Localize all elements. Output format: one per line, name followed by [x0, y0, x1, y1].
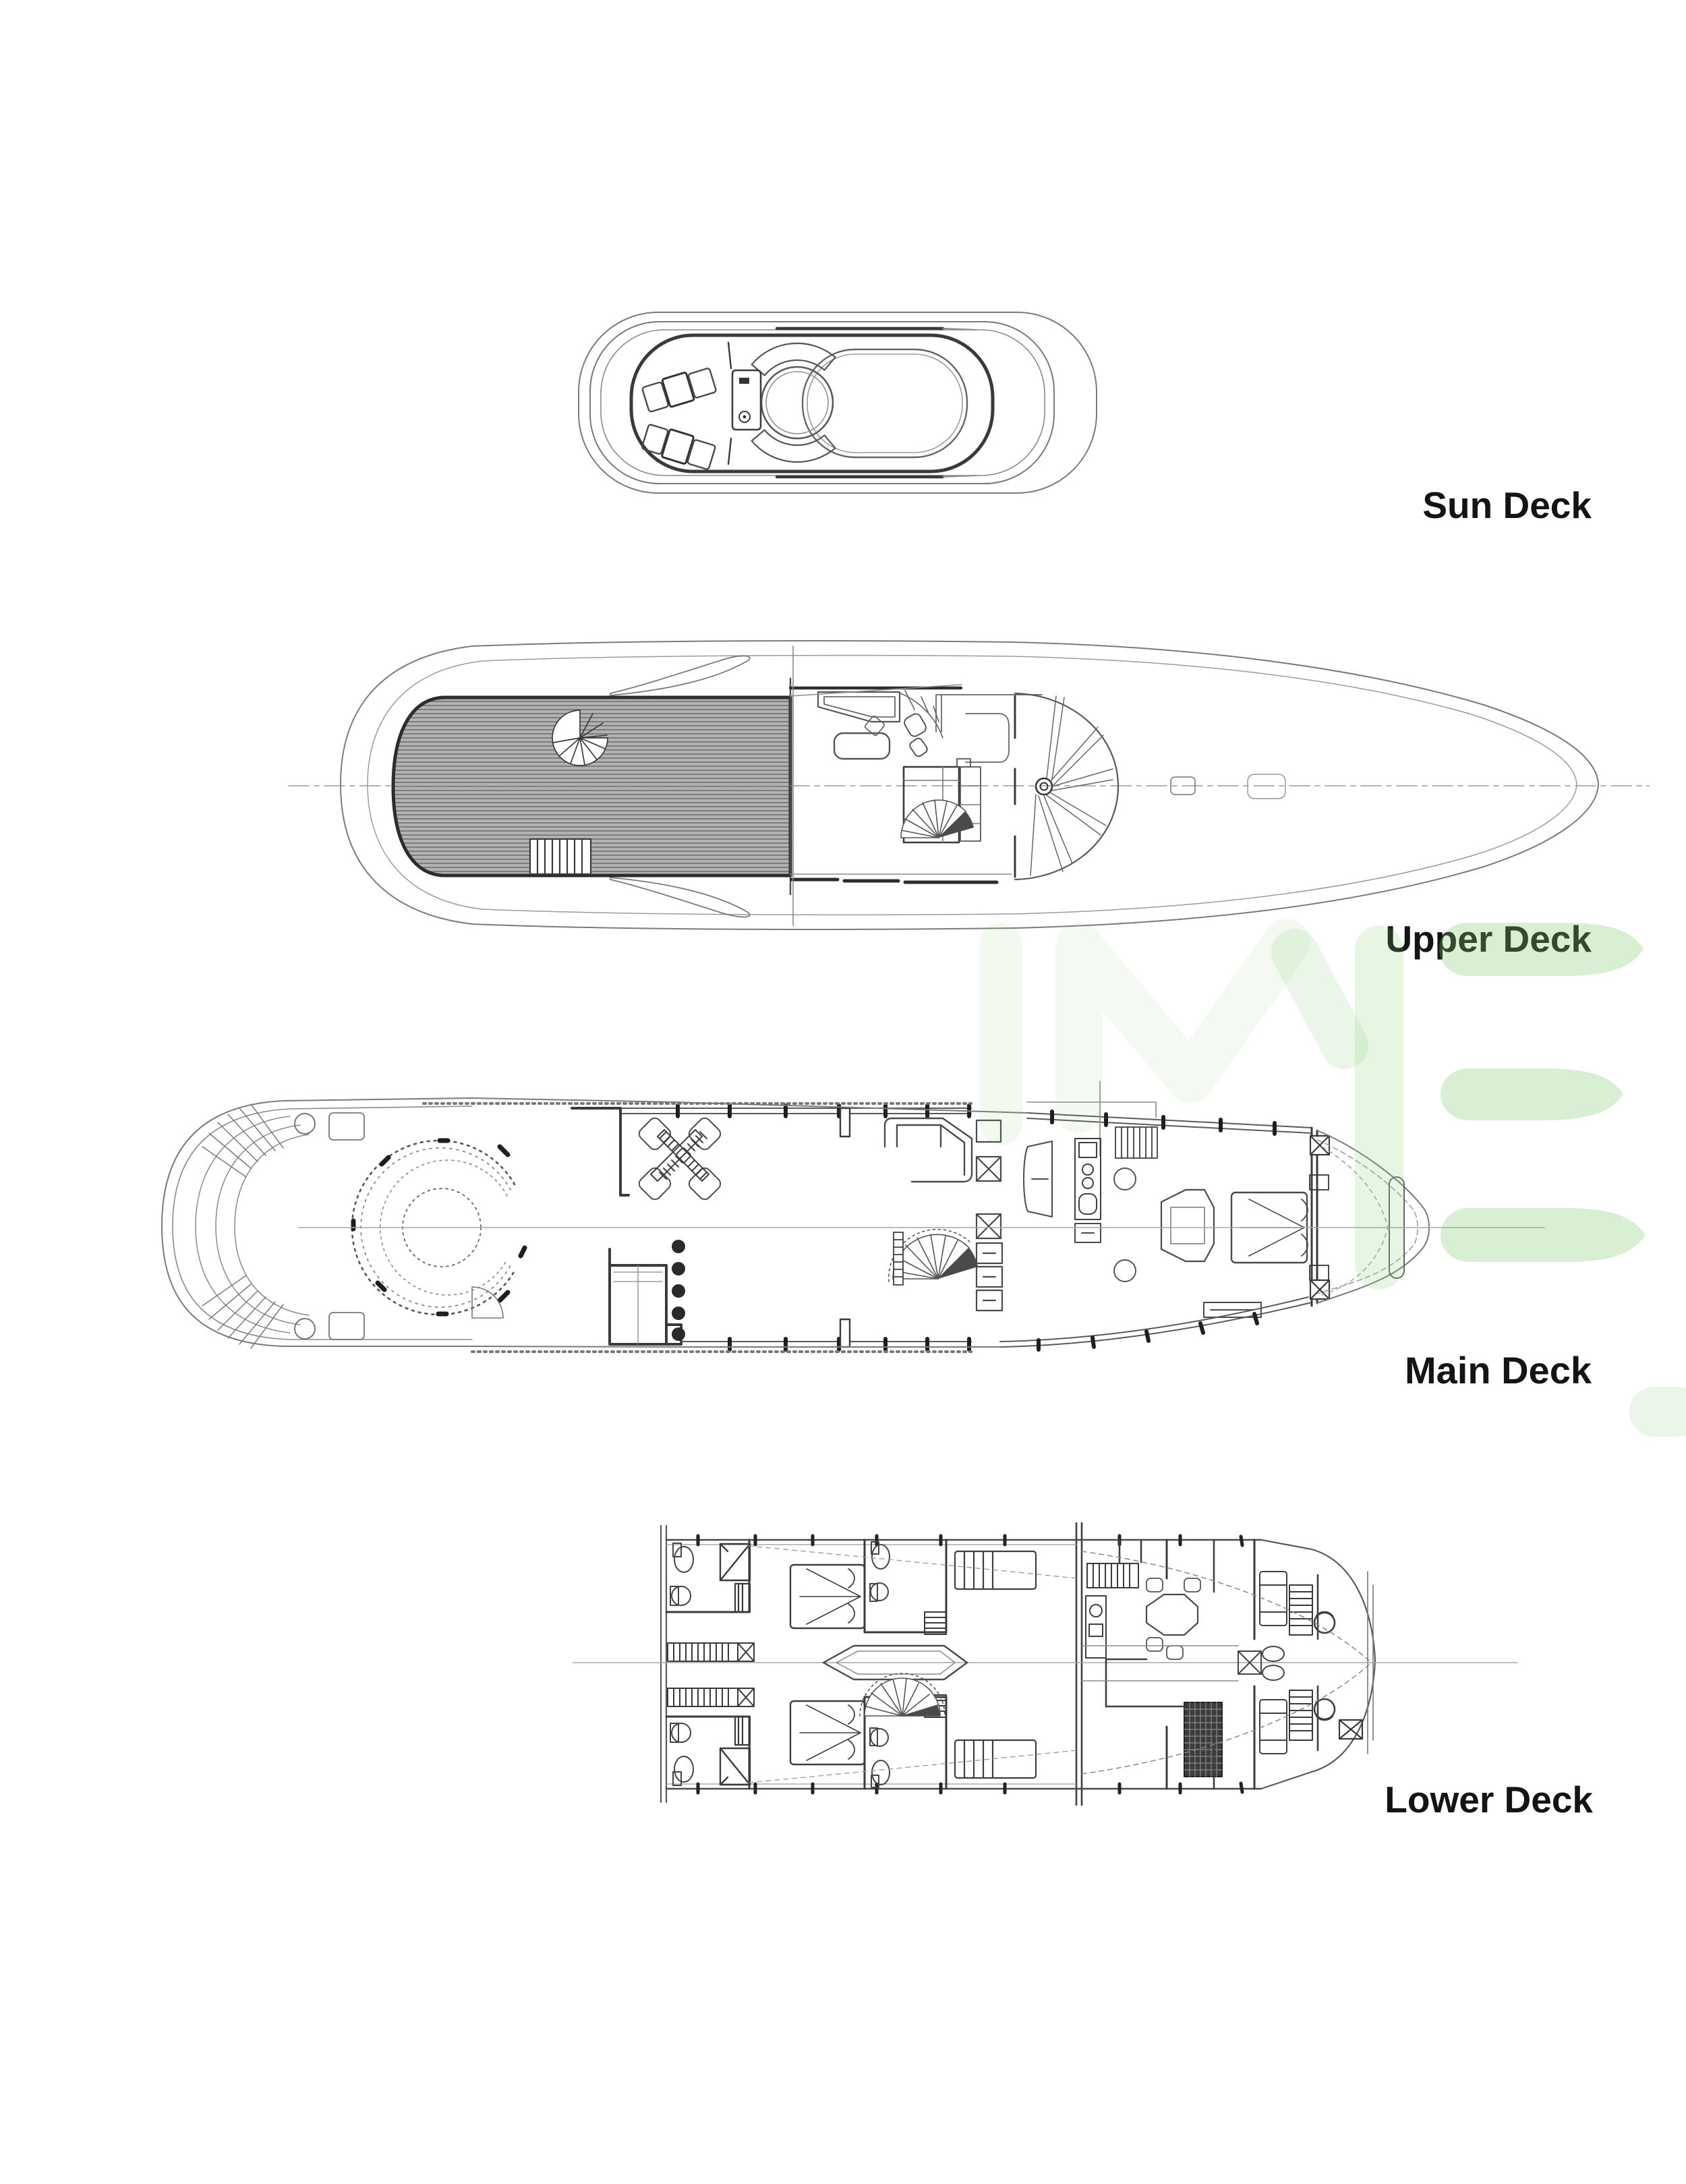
svg-text:Lower Deck: Lower Deck [1385, 1779, 1593, 1820]
svg-text:Main Deck: Main Deck [1405, 1349, 1592, 1391]
svg-text:Sun Deck: Sun Deck [1422, 484, 1592, 526]
